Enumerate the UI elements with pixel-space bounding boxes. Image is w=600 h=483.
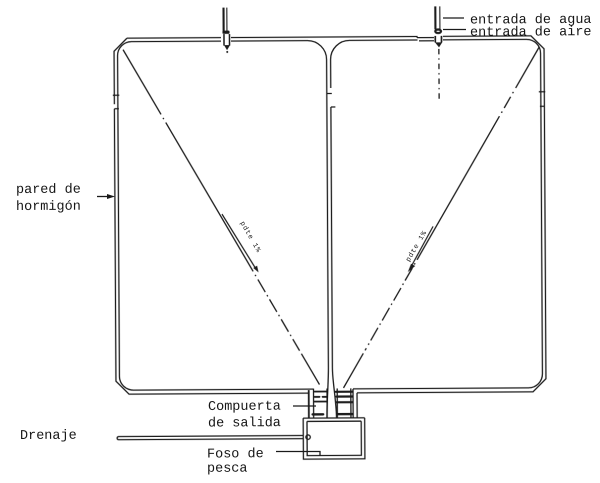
svg-text:Foso de: Foso de: [207, 447, 264, 462]
svg-text:Drenaje: Drenaje: [20, 429, 77, 444]
svg-text:entrada de aire: entrada de aire: [470, 25, 592, 41]
svg-text:pared de: pared de: [16, 183, 81, 198]
svg-text:de salida: de salida: [208, 416, 281, 431]
svg-text:Compuerta: Compuerta: [208, 400, 281, 415]
svg-text:hormigón: hormigón: [16, 200, 81, 215]
svg-text:pesca: pesca: [207, 462, 248, 477]
